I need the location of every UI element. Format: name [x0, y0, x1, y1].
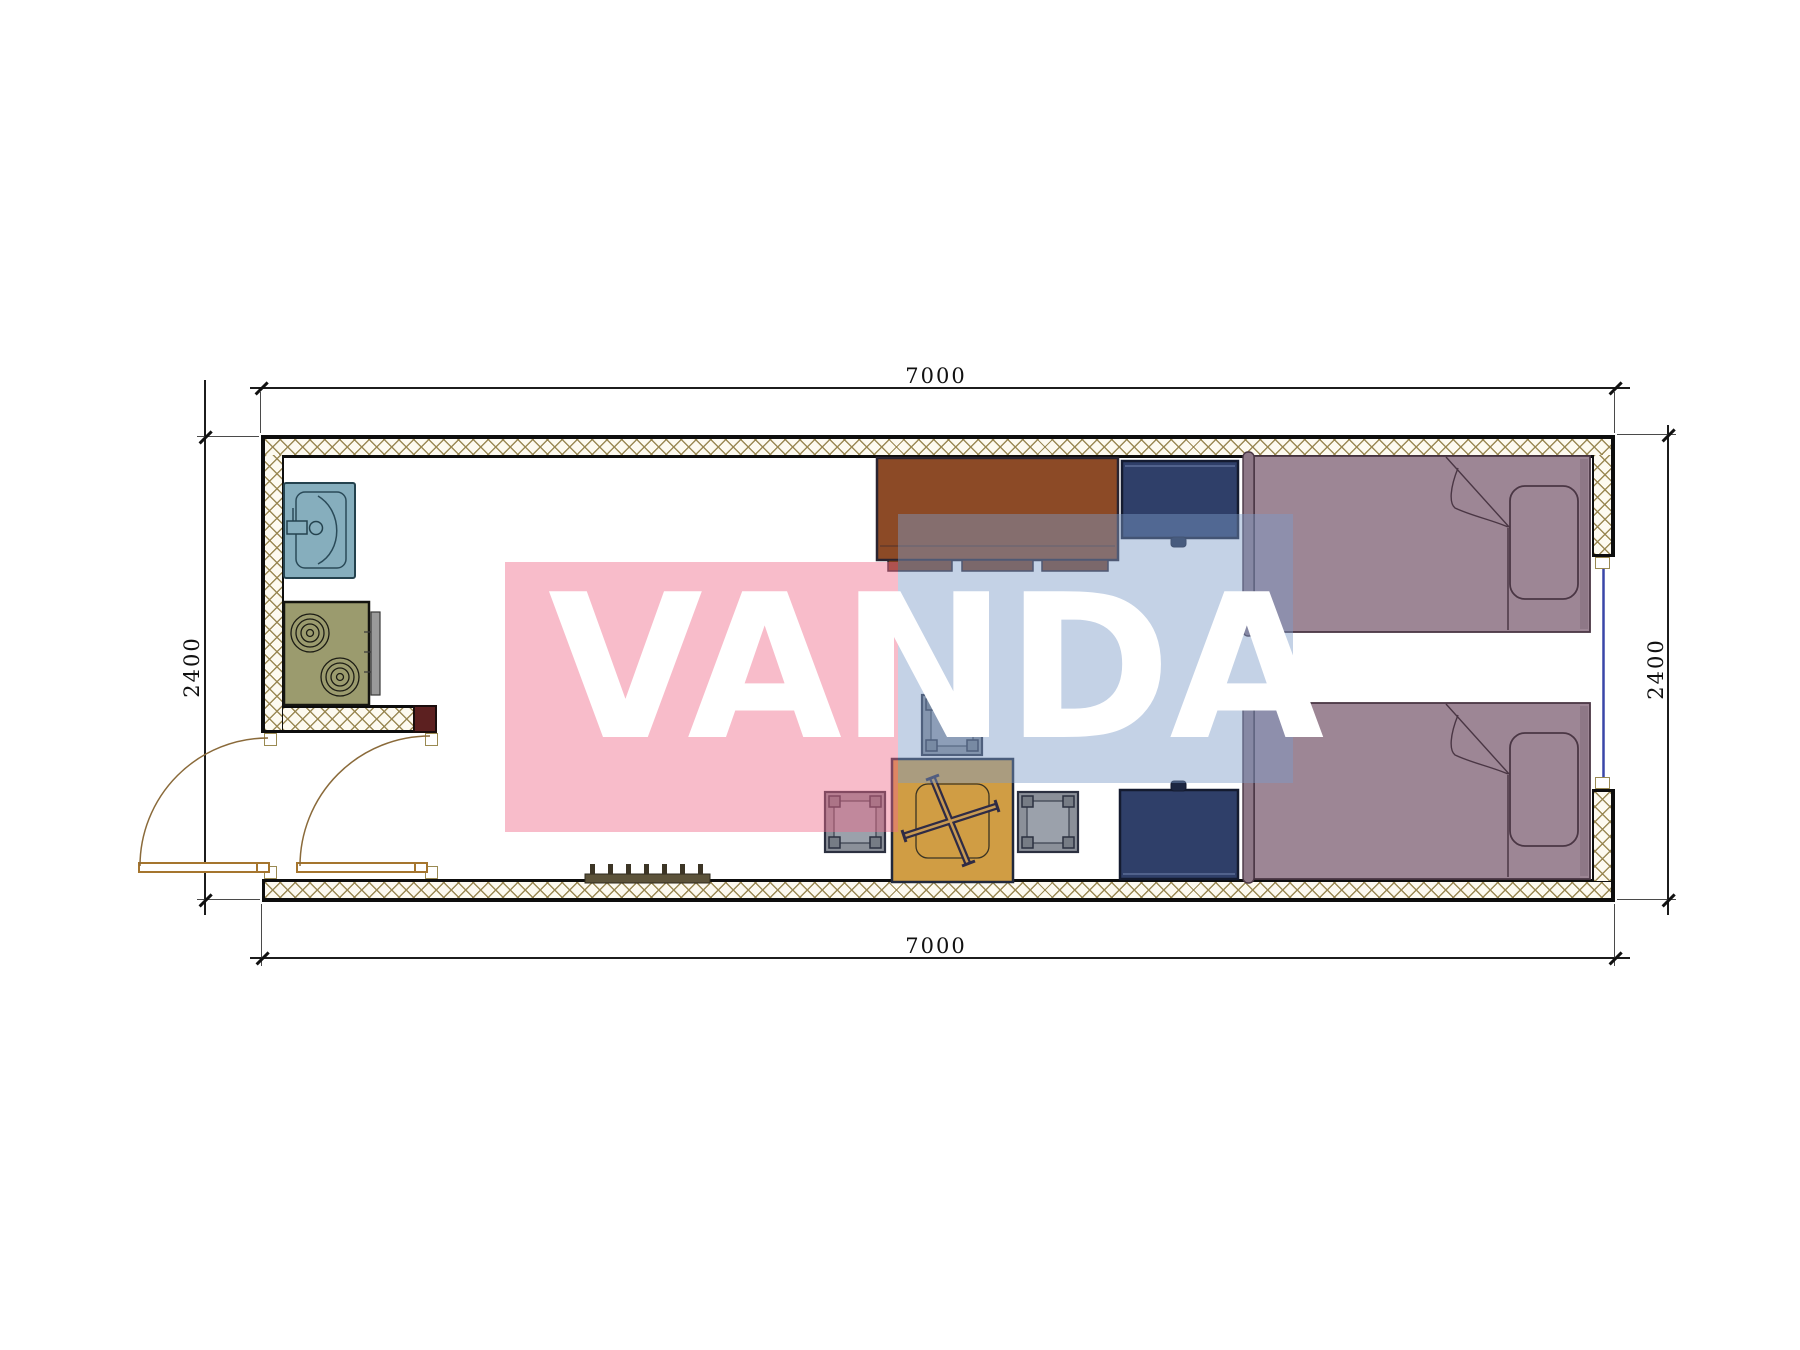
watermark-text: VANDA	[548, 569, 1322, 769]
stove-control-bar	[371, 612, 380, 695]
door-swing-arcs	[140, 736, 430, 866]
floor-plan-canvas: 7000 7000 2400 2400	[0, 0, 1800, 1350]
sink-unit	[284, 483, 355, 578]
peg-rack	[585, 864, 710, 883]
stove-two-burners	[284, 602, 380, 705]
stool-right	[1018, 792, 1078, 852]
wardrobe	[1120, 781, 1238, 879]
